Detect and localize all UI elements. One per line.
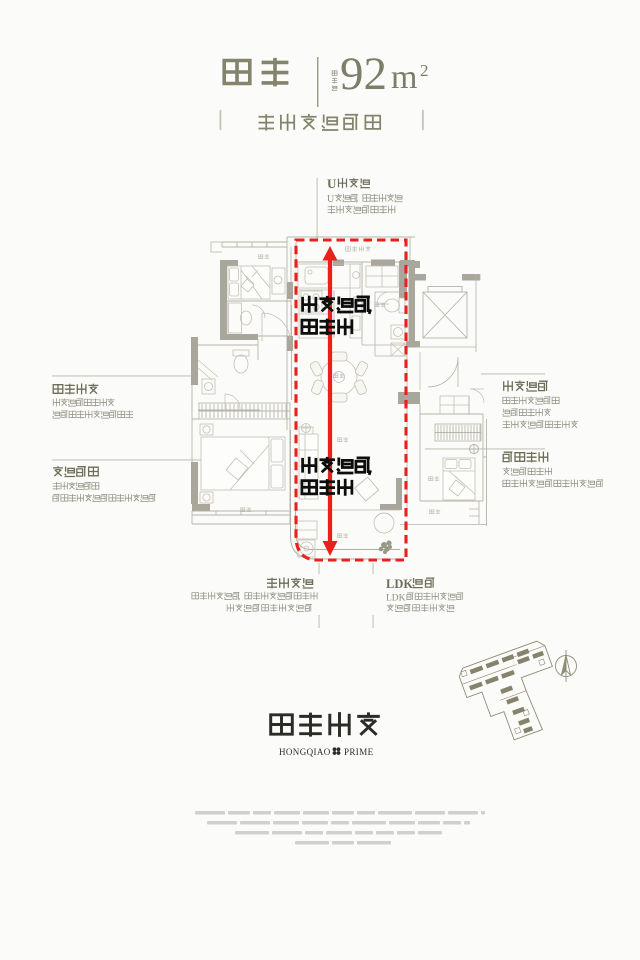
svg-text:m: m	[391, 59, 417, 96]
svg-text:HONGQIAO: HONGQIAO	[279, 747, 331, 757]
svg-text:PRIME: PRIME	[344, 747, 374, 757]
svg-text:U: U	[327, 176, 337, 191]
svg-text:92: 92	[340, 48, 387, 100]
svg-text:LDK: LDK	[386, 577, 413, 591]
svg-text:2: 2	[420, 61, 429, 80]
svg-text:U: U	[327, 194, 335, 205]
svg-text:LDK: LDK	[386, 594, 406, 604]
